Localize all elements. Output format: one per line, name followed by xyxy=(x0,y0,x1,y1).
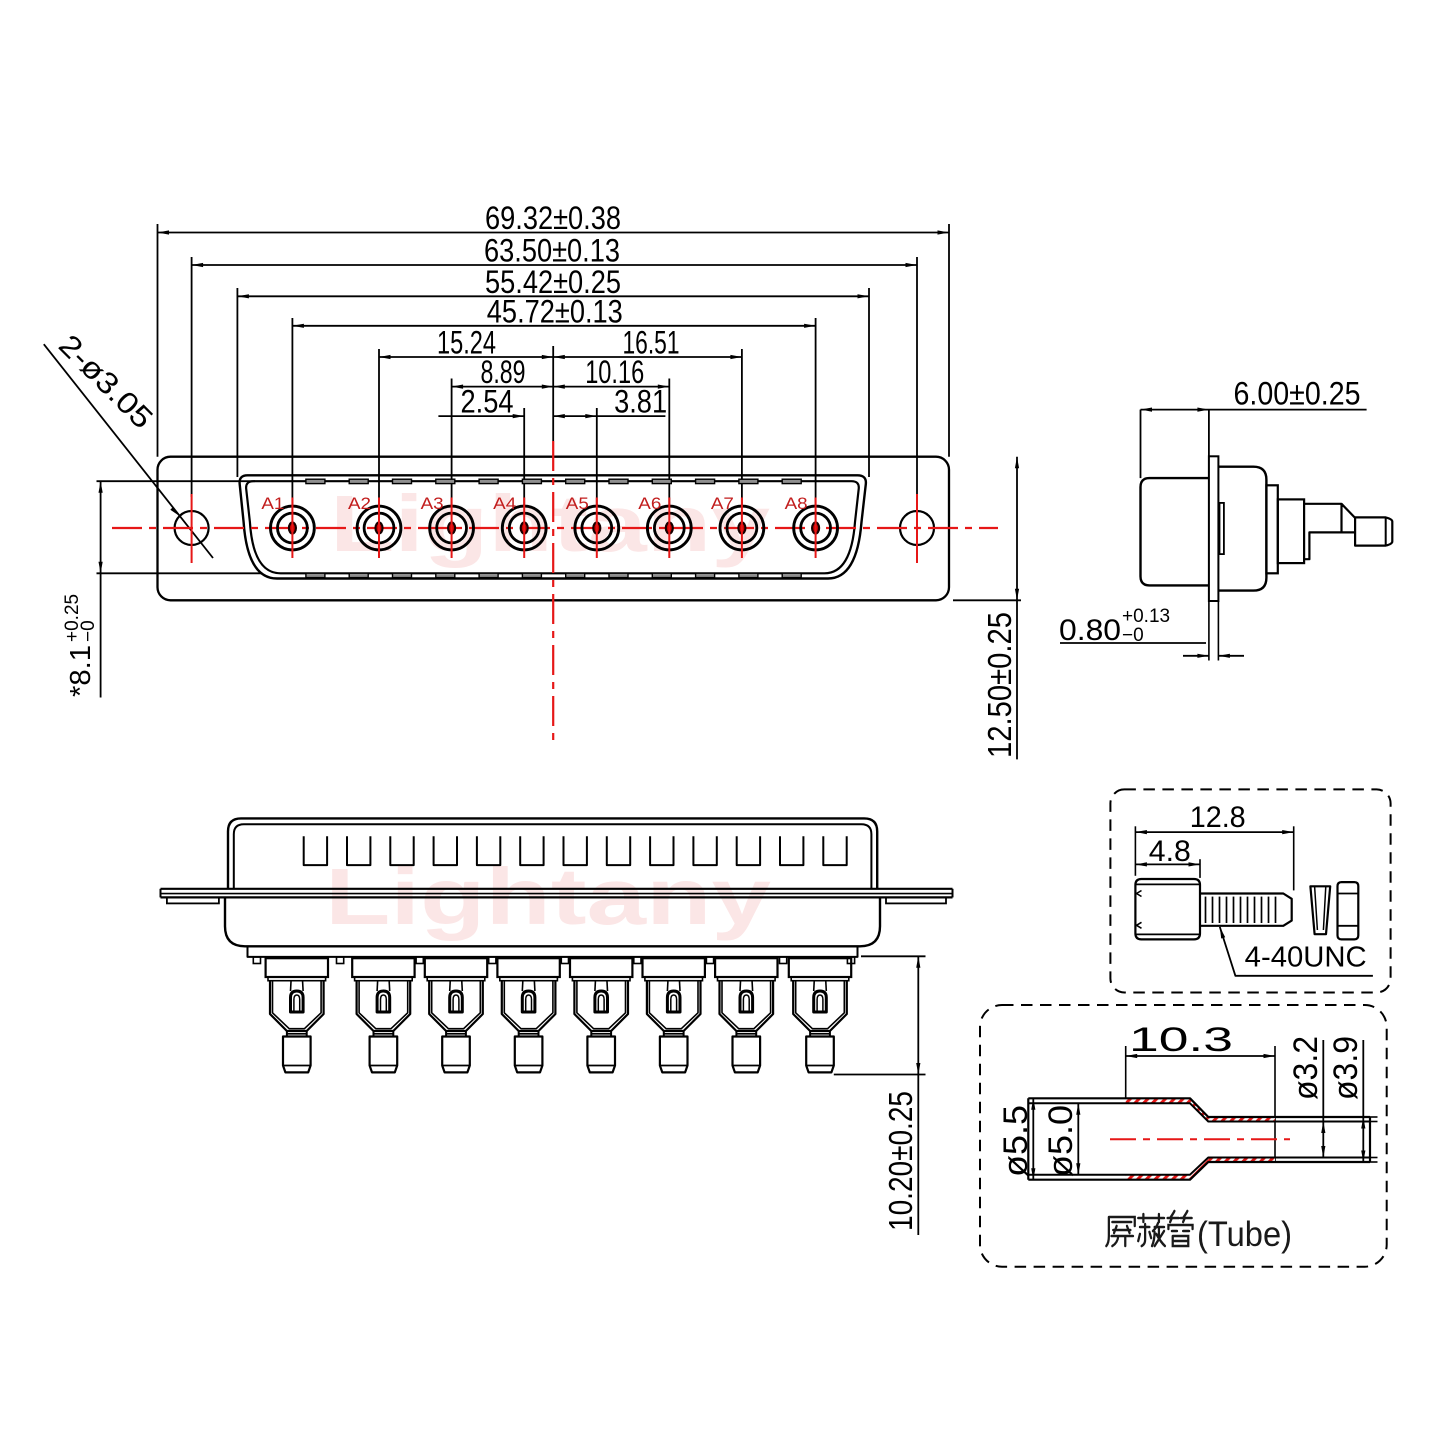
svg-text:10.3: 10.3 xyxy=(1129,1021,1233,1059)
svg-text:12.50±0.25: 12.50±0.25 xyxy=(981,612,1018,758)
svg-text:Lightany: Lightany xyxy=(330,479,771,568)
svg-text:6.00±0.25: 6.00±0.25 xyxy=(1234,376,1361,412)
svg-text:(Tube): (Tube) xyxy=(1197,1215,1292,1254)
svg-text:4-40UNC: 4-40UNC xyxy=(1245,942,1367,974)
svg-text:69.32±0.38: 69.32±0.38 xyxy=(485,200,621,236)
svg-text:A6: A6 xyxy=(638,495,661,513)
svg-text:A8: A8 xyxy=(785,495,808,513)
svg-text:+0.13: +0.13 xyxy=(1122,606,1170,627)
svg-text:−0: −0 xyxy=(78,620,99,642)
svg-text:A4: A4 xyxy=(493,495,516,513)
svg-text:A7: A7 xyxy=(711,495,734,513)
svg-text:0.80: 0.80 xyxy=(1059,614,1121,647)
svg-text:ø5.0: ø5.0 xyxy=(1042,1105,1080,1177)
svg-text:2.54: 2.54 xyxy=(461,384,514,420)
svg-text:4.8: 4.8 xyxy=(1149,835,1191,868)
svg-text:*8.1: *8.1 xyxy=(65,645,97,697)
svg-text:A1: A1 xyxy=(261,495,284,513)
svg-text:A5: A5 xyxy=(566,495,589,513)
svg-text:ø3.2: ø3.2 xyxy=(1287,1036,1325,1100)
svg-text:ø5.5: ø5.5 xyxy=(997,1105,1035,1177)
svg-text:10.20±0.25: 10.20±0.25 xyxy=(882,1091,919,1231)
svg-text:45.72±0.13: 45.72±0.13 xyxy=(487,293,623,329)
svg-text:ø3.9: ø3.9 xyxy=(1327,1036,1365,1100)
svg-text:A3: A3 xyxy=(421,495,444,513)
svg-text:A2: A2 xyxy=(348,495,371,513)
svg-text:12.8: 12.8 xyxy=(1190,801,1246,834)
svg-text:3.81: 3.81 xyxy=(614,384,667,420)
